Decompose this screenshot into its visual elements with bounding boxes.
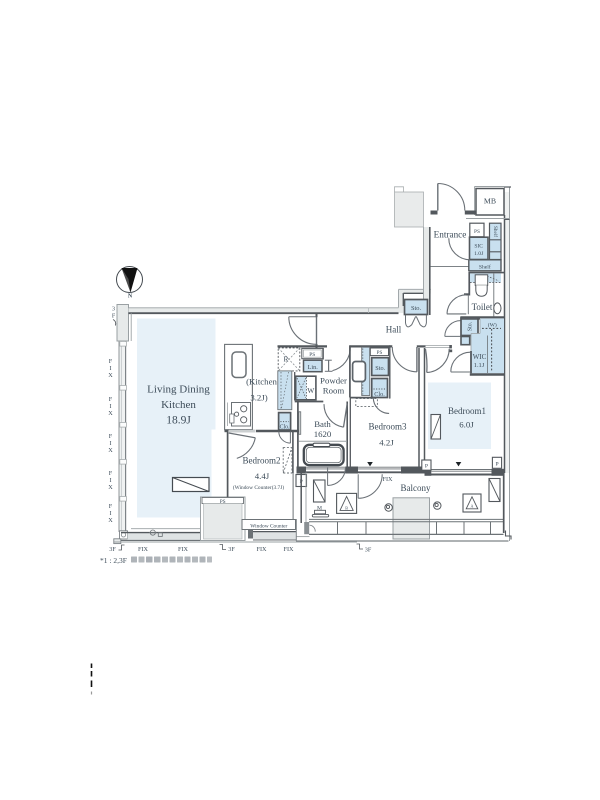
svg-text:Sto.: Sto. <box>411 305 422 312</box>
svg-text:FIX: FIX <box>257 546 268 553</box>
svg-text:Clo.: Clo. <box>374 391 385 398</box>
svg-text:A: A <box>471 504 474 509</box>
svg-text:18.9J: 18.9J <box>166 415 191 427</box>
svg-text:X: X <box>108 372 113 379</box>
svg-text:PS: PS <box>377 350 383 356</box>
svg-text:R: R <box>283 355 288 364</box>
svg-text:Room: Room <box>323 386 345 396</box>
svg-text:X: X <box>108 447 113 454</box>
svg-text:MB: MB <box>484 197 496 206</box>
svg-text:I: I <box>109 365 111 372</box>
svg-text:3F: 3F <box>365 547 372 554</box>
svg-text:Sto.: Sto. <box>468 321 474 331</box>
svg-text:P: P <box>495 461 498 467</box>
svg-text:Balcony: Balcony <box>401 483 431 493</box>
svg-text:(Window Counter(3.7J): (Window Counter(3.7J) <box>233 484 284 491</box>
svg-text:PS: PS <box>474 229 480 235</box>
svg-text:Living Dining: Living Dining <box>147 384 210 396</box>
svg-text:I: I <box>109 510 111 517</box>
svg-text:P: P <box>425 464 428 470</box>
svg-text:4.2J: 4.2J <box>379 438 394 448</box>
svg-text:F: F <box>109 358 113 365</box>
svg-text:FIX: FIX <box>383 476 394 483</box>
svg-text:(Kitchen: (Kitchen <box>246 377 277 387</box>
svg-text:Shelf: Shelf <box>479 263 491 270</box>
svg-text:1.1J: 1.1J <box>474 362 485 369</box>
svg-text:Hall: Hall <box>386 325 402 335</box>
svg-text:F: F <box>109 503 113 510</box>
svg-text:Bedroom2: Bedroom2 <box>243 456 281 466</box>
svg-text:Kitchen: Kitchen <box>161 399 196 411</box>
svg-text:Bedroom3: Bedroom3 <box>369 422 407 432</box>
svg-text:X: X <box>108 484 113 491</box>
svg-text:1620: 1620 <box>314 429 332 439</box>
svg-text:3: 3 <box>112 307 115 313</box>
svg-text:Window Counter: Window Counter <box>250 524 287 530</box>
svg-text:Bath: Bath <box>314 419 331 429</box>
svg-text:3.2J): 3.2J) <box>250 393 267 403</box>
svg-text:Shelf: Shelf <box>492 226 499 237</box>
svg-text:SIC: SIC <box>474 244 483 250</box>
svg-text:*1 : 2,3F: *1 : 2,3F <box>100 556 127 565</box>
svg-text:Entrance: Entrance <box>434 230 467 240</box>
svg-text:B: B <box>345 505 348 510</box>
svg-text:W: W <box>307 386 315 395</box>
svg-text:3F: 3F <box>109 546 116 553</box>
svg-text:X: X <box>108 517 113 524</box>
svg-text:N: N <box>128 294 133 300</box>
svg-text:FIX: FIX <box>284 546 295 553</box>
svg-text:I: I <box>109 440 111 447</box>
svg-text:I: I <box>109 403 111 410</box>
svg-text:F: F <box>109 396 113 403</box>
svg-text:4.4J: 4.4J <box>255 471 270 481</box>
svg-text:Powder: Powder <box>320 376 347 386</box>
svg-text:F: F <box>109 433 113 440</box>
svg-text:I: I <box>109 477 111 484</box>
svg-text:Toilet: Toilet <box>472 302 493 312</box>
svg-text:FIX: FIX <box>178 546 189 553</box>
svg-text:Lin.: Lin. <box>308 364 319 371</box>
svg-text:Bedroom1: Bedroom1 <box>448 406 486 416</box>
svg-text:X: X <box>108 410 113 417</box>
svg-text:Clo.: Clo. <box>280 424 290 430</box>
svg-text:3F: 3F <box>228 546 235 553</box>
svg-text:WIC: WIC <box>473 353 487 361</box>
svg-text:(W): (W) <box>488 322 497 329</box>
svg-text:FIX: FIX <box>138 546 149 553</box>
svg-text:6.0J: 6.0J <box>459 420 474 430</box>
svg-text:1.0J: 1.0J <box>474 251 484 257</box>
svg-text:F: F <box>109 470 113 477</box>
svg-text:Sto.: Sto. <box>375 365 385 372</box>
svg-text:PS: PS <box>309 352 315 358</box>
